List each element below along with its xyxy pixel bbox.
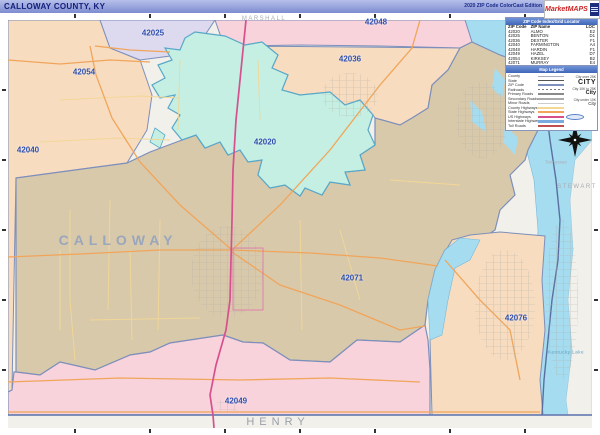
us-hwy-swatch	[538, 116, 564, 118]
map-legend-panel: Map Legend CountyStateZIP CodeRailroadsP…	[505, 65, 598, 131]
region-henry-strip	[8, 415, 592, 428]
legend-city-item: City under 10KCity	[566, 98, 596, 107]
state-hwy-swatch	[538, 111, 564, 113]
county-hwy-swatch	[538, 107, 564, 109]
edition-label: 2020 ZIP Code ColorCast Edition	[464, 3, 542, 9]
zip-index-panel: ZIP Code Index/Grid Locator ZIP CodeZIP …	[505, 17, 598, 71]
rail-swatch	[538, 89, 564, 90]
zip-index-table: ZIP CodeZIP NameLOC42020ALMOE242025BENTO…	[506, 25, 597, 70]
map-legend-body: CountyStateZIP CodeRailroadsPrimary Road…	[506, 73, 597, 130]
legend-city-item: City 10K to 25KCity	[566, 87, 596, 97]
secondary-swatch	[538, 98, 564, 100]
county-swatch	[538, 76, 564, 77]
publisher-logo: MarketMAPS	[544, 0, 600, 19]
logo-badge-icon	[590, 3, 599, 16]
legend-city-items: City over 25KCITYCity 10K to 25KCityCity…	[566, 75, 596, 125]
map-poster: CALLOWAY COUNTY, KY 2020 ZIP Code ColorC…	[0, 0, 600, 435]
highway-shield-icon	[566, 114, 584, 120]
primary-swatch	[538, 93, 564, 95]
legend-city-item: City over 25KCITY	[566, 75, 596, 86]
title-bar: CALLOWAY COUNTY, KY 2020 ZIP Code ColorC…	[0, 0, 600, 14]
minor-swatch	[538, 103, 564, 104]
zip-swatch	[538, 84, 564, 86]
map-legend-header: Map Legend	[506, 66, 597, 73]
interstate-swatch	[538, 120, 564, 123]
toll-swatch	[538, 125, 564, 127]
state-swatch	[538, 80, 564, 81]
map-title: CALLOWAY COUNTY, KY	[0, 2, 105, 11]
publisher-logo-text: MarketMAPS	[545, 6, 588, 13]
